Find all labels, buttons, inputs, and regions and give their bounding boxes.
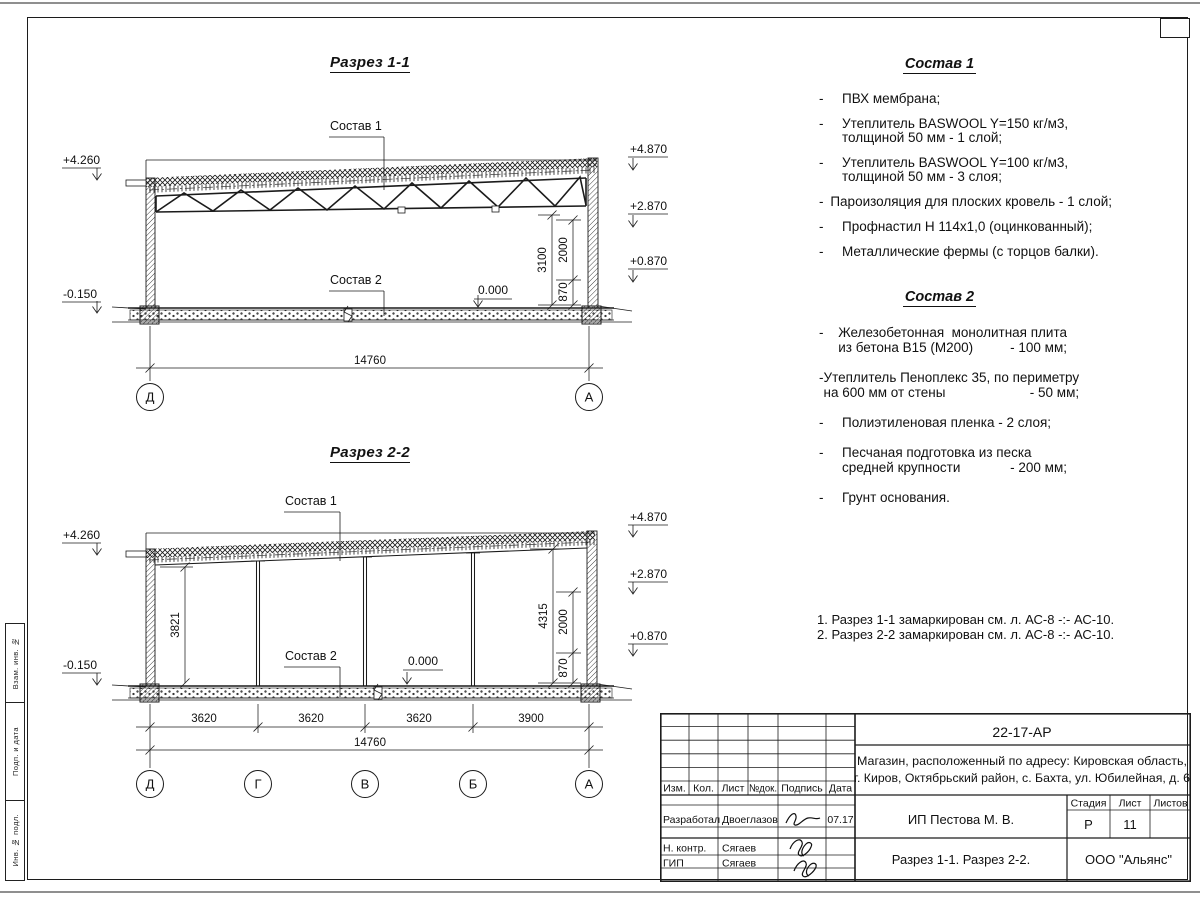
leader-lines <box>329 137 384 316</box>
section-1-1-title: Разрез 1-1 <box>330 54 410 73</box>
signature <box>786 814 820 826</box>
elevation-label: +4.260 <box>63 528 100 542</box>
right-wall <box>588 158 598 308</box>
date-value: 07.17 <box>827 814 853 826</box>
spec-list-items: -ПВХ мембрана;-Утеплитель BASWOOL Y=150 … <box>812 92 1112 259</box>
elevation-label: -0.150 <box>63 287 97 301</box>
spec-list-title: Состав 2 <box>812 289 1067 305</box>
person-name: Сягаев <box>722 843 757 855</box>
zero-level-mark: 0.000 <box>403 654 444 684</box>
spec-list-item: -Пароизоляция для плоских кровель - 1 сл… <box>812 195 1112 209</box>
elevation-label: +4.870 <box>630 510 667 524</box>
canopy <box>126 551 146 557</box>
elevation-label: +0.870 <box>630 254 667 268</box>
elevation-label: +2.870 <box>630 199 667 213</box>
left-wall <box>146 549 155 686</box>
signature <box>790 840 812 856</box>
sheet-number: 11 <box>1123 817 1137 832</box>
dimension-value: 3100 <box>537 247 549 273</box>
floor-slab <box>130 688 612 698</box>
spec-list-sostav1: Состав 1 -ПВХ мембрана;-Утеплитель BASWO… <box>812 56 1112 270</box>
bottom-dimensions: 3620 3620 3620 3900 14760 Д Г В Б А <box>136 704 603 798</box>
col-header: Кол. <box>693 783 714 795</box>
spec-list-items: -Железобетонная монолитная плитаиз бетон… <box>812 325 1067 505</box>
col-header: Подпись <box>781 783 823 795</box>
dimension-value: 870 <box>558 658 570 677</box>
zero-level-value: 0.000 <box>478 283 508 297</box>
note-line: 1. Разрез 1-1 замаркирован см. л. АС-8 -… <box>817 612 1114 627</box>
col-header: Изм. <box>663 783 686 795</box>
title-block: 22-17-АР Магазин, расположенный по адрес… <box>660 713 1191 882</box>
spec-list-item: -Металлические фермы (с торцов балки). <box>812 245 1112 259</box>
dimension-value: 4315 <box>538 603 550 629</box>
sheet-header: Лист <box>1119 798 1142 810</box>
elevation-label: +0.870 <box>630 629 667 643</box>
dimension-value: 3620 <box>406 713 432 725</box>
vertical-dimensions: 3100 2000 870 <box>537 211 581 310</box>
spec-list-item: -Утеплитель BASWOOL Y=150 кг/м3,толщиной… <box>812 117 1112 145</box>
left-wall <box>146 178 155 308</box>
right-wall <box>587 531 597 686</box>
col-header: Лист <box>722 783 745 795</box>
note-line: 2. Разрез 2-2 замаркирован см. л. АС-8 -… <box>817 627 1114 642</box>
role-label: Н. контр. <box>663 843 706 855</box>
columns <box>251 553 480 686</box>
leader-label-sostav1: Состав 1 <box>330 119 382 133</box>
axis-label: Г <box>254 777 261 792</box>
dimension-value: 3821 <box>170 612 182 638</box>
section-2-2-drawing: 0.000 +4.260 -0.150 +4.870 +2.870 +0.870 <box>62 510 668 798</box>
axis-label: А <box>585 390 594 405</box>
notes: 1. Разрез 1-1 замаркирован см. л. АС-8 -… <box>817 612 1114 642</box>
spec-list-title: Состав 1 <box>812 56 1067 72</box>
leader-lines <box>284 512 340 697</box>
dimension-value: 3900 <box>518 713 544 725</box>
zero-level-value: 0.000 <box>408 654 438 668</box>
spec-list-item: -Профнастил Н 114х1,0 (оцинкованный); <box>812 220 1112 234</box>
dimension-value: 2000 <box>558 237 570 263</box>
spec-list-item: -Песчаная подготовка из пескасредней кру… <box>812 445 1067 475</box>
elevation-label: +4.870 <box>630 142 667 156</box>
spec-list-item: -ПВХ мембрана; <box>812 92 1112 106</box>
leader-label-sostav2: Состав 2 <box>330 273 382 287</box>
person-name: Сягаев <box>722 858 757 870</box>
spec-list-item: -Утеплитель BASWOOL Y=100 кг/м3,толщиной… <box>812 156 1112 184</box>
col-header: Дата <box>829 783 852 795</box>
project-address-line2: г. Киров, Октябрьский район, с. Бахта, у… <box>854 771 1190 785</box>
page: { "margin_labels": ["Взам. инв. №", "Под… <box>0 0 1200 900</box>
spec-list-item: -Грунт основания. <box>812 490 1067 505</box>
leader-label-sostav2: Состав 2 <box>285 649 337 663</box>
doc-code: 22-17-АР <box>992 724 1051 740</box>
stage-header: Стадия <box>1071 798 1107 810</box>
axis-label: А <box>585 777 594 792</box>
elevation-label: +4.260 <box>63 153 100 167</box>
bottom-dimension: 14760 Д А <box>136 326 603 411</box>
stage-value: Р <box>1084 817 1093 832</box>
elevation-label: +2.870 <box>630 567 667 581</box>
role-label: ГИП <box>663 858 684 870</box>
floor-slab <box>130 310 612 320</box>
dimension-value: 3620 <box>298 713 324 725</box>
dimension-value: 2000 <box>558 609 570 635</box>
dimension-value: 14760 <box>354 355 386 367</box>
vertical-dimensions: 3821 4315 2000 870 <box>160 545 581 688</box>
axis-label: В <box>361 777 370 792</box>
company-name: ООО "Альянс" <box>1085 852 1172 867</box>
spec-list-item: -Полиэтиленовая пленка - 2 слоя; <box>812 415 1067 430</box>
spec-list-item: -Железобетонная монолитная плитаиз бетон… <box>812 325 1067 355</box>
dimension-value: 3620 <box>191 713 217 725</box>
elevation-label: -0.150 <box>63 658 97 672</box>
signature <box>794 861 816 877</box>
spec-list-item: -Утеплитель Пеноплекс 35, по периметруна… <box>812 370 1067 400</box>
sheets-header: Листов <box>1153 798 1188 810</box>
axis-label: Д <box>146 390 155 405</box>
dimension-value: 870 <box>558 282 570 301</box>
axis-label: Д <box>146 777 155 792</box>
dimension-value: 14760 <box>354 737 386 749</box>
section-2-2-title: Разрез 2-2 <box>330 444 410 463</box>
drawing-title: Разрез 1-1. Разрез 2-2. <box>892 852 1030 867</box>
axis-label: Б <box>469 777 478 792</box>
role-label: Разработал <box>663 814 720 826</box>
person-name: Двоеглазов <box>722 814 778 826</box>
col-header: №док. <box>749 783 777 795</box>
leader-label-sostav1: Состав 1 <box>285 494 337 508</box>
project-address-line1: Магазин, расположенный по адресу: Кировс… <box>857 754 1187 768</box>
client-name: ИП Пестова М. В. <box>908 812 1014 827</box>
spec-list-sostav2: Состав 2 -Железобетонная монолитная плит… <box>812 289 1067 520</box>
canopy <box>126 180 146 186</box>
zero-level-mark: 0.000 <box>474 283 513 307</box>
